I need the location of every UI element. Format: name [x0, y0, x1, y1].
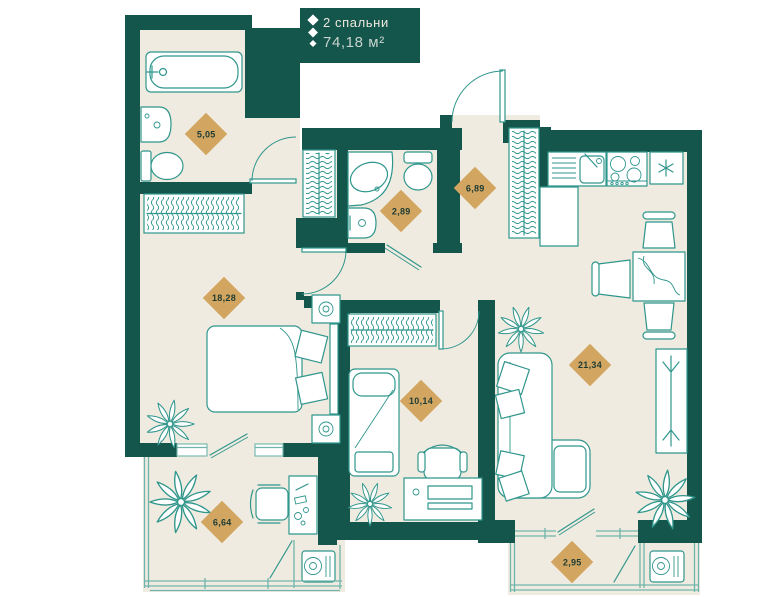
- wardrobe-icon: [144, 194, 244, 233]
- floor-plan: 5,05 2,89 6,89 18,28 10,14 21,34 6,64 2,…: [0, 0, 780, 603]
- wardrobe-icon: [348, 314, 436, 346]
- unit-info-badge: 2 спальни 74,18 м²: [300, 8, 420, 63]
- floor-plan-drawing: [0, 0, 780, 603]
- sink-icon: [141, 107, 171, 142]
- ac-unit-icon: [650, 551, 684, 582]
- stove-icon: [607, 152, 647, 186]
- kitchen-sink-icon: [548, 152, 606, 186]
- diamond-column-icon: [307, 13, 319, 59]
- balcony-desk-icon: [289, 476, 317, 534]
- total-area-label: 74,18 м²: [323, 34, 412, 51]
- coat-rack-icon: [656, 349, 687, 453]
- entrance-door-icon: [452, 70, 505, 122]
- sink-icon: [348, 208, 376, 238]
- nightstand-lamp-icon: [312, 295, 340, 323]
- dining-chair-icon: [643, 212, 675, 248]
- dining-table-icon: [633, 252, 685, 301]
- toilet-icon: [141, 151, 183, 181]
- bedrooms-label: 2 спальни: [323, 15, 412, 30]
- toilet-icon: [404, 152, 432, 190]
- ac-unit-icon: [302, 551, 335, 582]
- dining-chair-icon: [643, 303, 675, 339]
- wardrobe-icon: [509, 128, 539, 238]
- wardrobe-icon: [303, 150, 335, 217]
- bathtub-icon: [146, 52, 242, 92]
- fridge-icon: [650, 152, 683, 184]
- single-bed-icon: [349, 369, 399, 476]
- desk-icon: [404, 478, 482, 520]
- nightstand-lamp-icon: [312, 415, 340, 443]
- kitchen-cabinet-icon: [540, 187, 578, 246]
- dining-chair-icon: [592, 260, 630, 298]
